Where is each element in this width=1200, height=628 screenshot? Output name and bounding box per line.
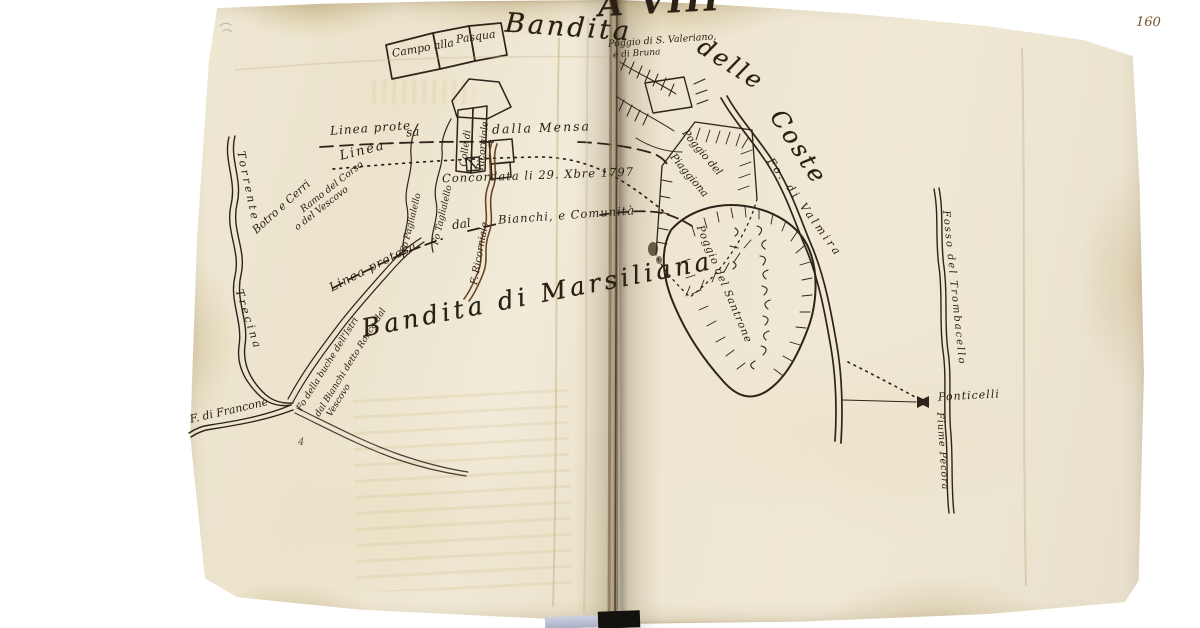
- binder-clip: [598, 610, 641, 628]
- label-dal: dal: [451, 217, 471, 231]
- ponticelli-crossing: [843, 362, 929, 408]
- stream-torrente-trecina: [227, 136, 293, 406]
- hill-santrone: [664, 205, 816, 396]
- label-linea-protesa-top-sa: sa: [405, 125, 419, 138]
- fold-lines: [609, 0, 617, 628]
- river-valmira: [721, 96, 842, 443]
- map-drawing: [0, 0, 1200, 628]
- label-mark4: 4: [298, 438, 304, 448]
- pencil-mark: [220, 23, 232, 32]
- label-ponticelli: Ponticelli: [938, 388, 1000, 402]
- scanned-manuscript-map: 160 A VIII Bandita delle Coste Bandita d…: [0, 0, 1200, 628]
- folio-number: 160: [1136, 16, 1161, 30]
